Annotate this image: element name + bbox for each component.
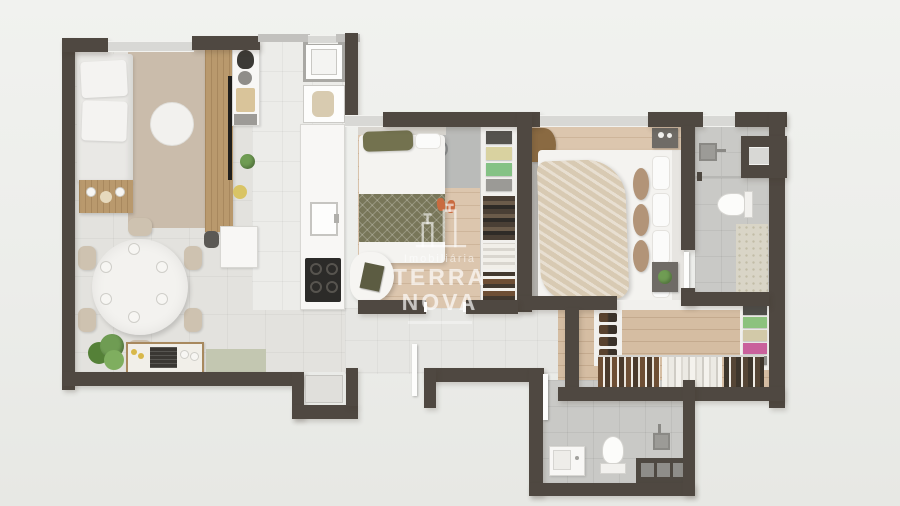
dining-chair: [128, 218, 152, 236]
place-setting: [128, 243, 140, 255]
shower-head: [699, 143, 717, 161]
shower-arm: [658, 424, 661, 433]
sofa-pillow: [80, 60, 128, 98]
bed2-cushion: [633, 168, 649, 200]
wall-bedroom1-bottom-b: [466, 300, 518, 314]
wall-top-mid: [192, 36, 260, 50]
cutting-board: [236, 88, 255, 112]
balcony-plant: [104, 350, 124, 370]
shoes: [599, 325, 617, 334]
wall-bottom-left: [62, 372, 304, 386]
window-laundry: [308, 35, 338, 44]
dining-chair: [78, 246, 96, 270]
shower-tile: [657, 463, 670, 477]
nightstand-decor: [658, 132, 664, 138]
place-setting: [100, 261, 112, 273]
folded-clothes: [486, 147, 512, 160]
hanging-clothes-brown: [598, 357, 660, 389]
wall-laundry-top: [258, 34, 310, 42]
plate: [190, 352, 199, 361]
window-duct: [749, 147, 769, 165]
wall-indent-left: [424, 368, 436, 408]
pot: [238, 71, 252, 85]
knit-throw: [537, 159, 630, 302]
wall-master-top: [648, 112, 703, 127]
toilet: [602, 436, 624, 464]
toilet-tank: [744, 191, 753, 218]
toilet: [717, 193, 745, 216]
bed1-blanket: [359, 194, 445, 242]
small-appliance: [234, 114, 257, 125]
sofa-pillow: [81, 100, 127, 142]
wall-master-bath: [681, 126, 695, 250]
place-setting: [128, 311, 140, 323]
dining-chair: [78, 308, 96, 332]
wall-left: [62, 38, 75, 390]
bed1-pillow: [363, 130, 414, 152]
nightstand-plant: [658, 270, 672, 284]
folded-clothes: [743, 343, 767, 354]
wall-entry-recess-right: [346, 368, 358, 406]
plate: [86, 187, 96, 197]
bed2-cushion: [633, 240, 649, 272]
folded-clothes: [743, 330, 767, 341]
wall-bathroom2-right: [683, 380, 695, 496]
wall-closet-bottom: [558, 387, 784, 401]
wall-entry-recess-bottom: [292, 405, 358, 419]
folded-clothes: [486, 179, 512, 191]
hanging-clothes-dark: [483, 196, 515, 240]
plate: [180, 350, 189, 359]
glass-handle: [697, 172, 702, 181]
faucet: [575, 456, 579, 460]
wall-hall-bottom: [424, 368, 544, 382]
bowl: [100, 191, 112, 203]
door-post: [424, 302, 427, 312]
place-setting: [100, 293, 112, 305]
bed2-pillow: [652, 193, 670, 227]
washer-lid: [311, 49, 337, 75]
hanging-clothes-dark: [724, 357, 764, 389]
plate: [115, 187, 125, 197]
shoes: [599, 337, 617, 346]
nightstand-decor: [667, 133, 672, 138]
wall-bedroom1-bottom-a: [358, 300, 426, 314]
shoes: [599, 313, 617, 322]
wall-top-left: [62, 38, 108, 52]
bed1-pillow-small: [415, 133, 441, 149]
nightstand: [652, 128, 678, 148]
window-master: [540, 115, 648, 127]
folded-clothes: [486, 131, 512, 144]
folded-clothes: [486, 163, 512, 176]
barbecue-grill: [150, 347, 177, 368]
bed2-pillow: [652, 156, 670, 190]
counter-plant: [240, 154, 255, 169]
door-ensuite: [684, 252, 689, 290]
window-living: [108, 41, 194, 52]
vanity-sink: [553, 450, 571, 470]
entry-doormat: [305, 375, 343, 403]
door-bathroom2: [543, 374, 548, 420]
lemon: [138, 353, 144, 359]
wall-kitchen-right: [345, 33, 358, 117]
wall-ensuite-bottom: [683, 292, 769, 306]
laundry-sink-basin: [312, 91, 334, 117]
bed2-pillow: [652, 230, 670, 264]
kettle: [237, 50, 254, 69]
hallway-floor: [345, 308, 567, 374]
stool: [204, 231, 219, 248]
wall-bathroom2-left: [529, 368, 543, 496]
wall-bathroom2-bottom: [529, 483, 695, 496]
place-setting: [156, 261, 168, 273]
wall-bedrooms-divider: [517, 112, 532, 312]
window-bedroom1: [345, 115, 383, 127]
floorplan-scene: Imobiliária TERRA NOVA: [0, 0, 900, 506]
dining-table: [92, 239, 188, 335]
bed2-cushion: [633, 204, 649, 236]
lemon: [131, 349, 137, 355]
dining-chair: [184, 246, 202, 270]
wall-hall-closet: [565, 308, 579, 390]
burner: [310, 281, 322, 293]
fruit-bowl: [233, 185, 247, 199]
peninsula-counter: [220, 226, 258, 268]
door-entry: [412, 344, 417, 396]
shower-head: [653, 433, 670, 450]
toilet-tank: [600, 463, 626, 474]
burner: [326, 263, 338, 275]
folded-clothes: [743, 317, 767, 328]
hanging-clothes-light: [483, 243, 515, 269]
shower-tile: [641, 463, 654, 477]
faucet: [334, 214, 339, 223]
balcony-mat: [206, 349, 266, 373]
round-rug: [150, 102, 194, 146]
place-setting: [156, 293, 168, 305]
burner: [310, 263, 322, 275]
burner: [326, 281, 338, 293]
window-ensuite: [703, 115, 735, 127]
dining-chair: [184, 308, 202, 332]
bath-mat-marble: [736, 224, 768, 292]
shower-arm: [717, 149, 726, 152]
